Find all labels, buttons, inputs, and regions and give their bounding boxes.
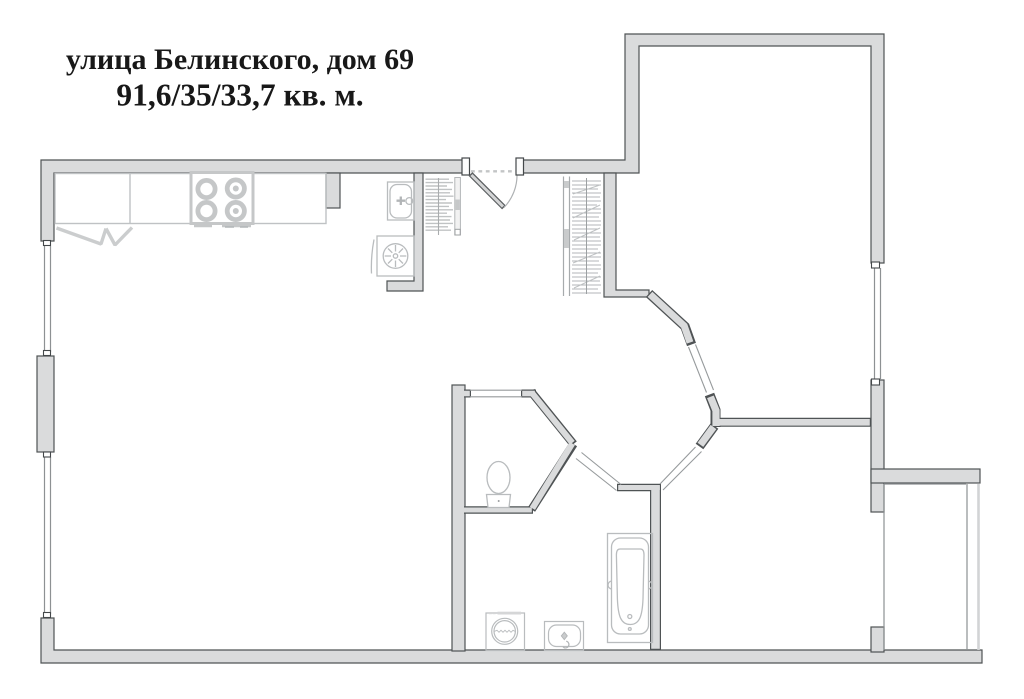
svg-text:улица Белинского, дом 69: улица Белинского, дом 69 xyxy=(66,43,414,76)
svg-text:91,6/35/33,7 кв. м.: 91,6/35/33,7 кв. м. xyxy=(116,78,363,113)
